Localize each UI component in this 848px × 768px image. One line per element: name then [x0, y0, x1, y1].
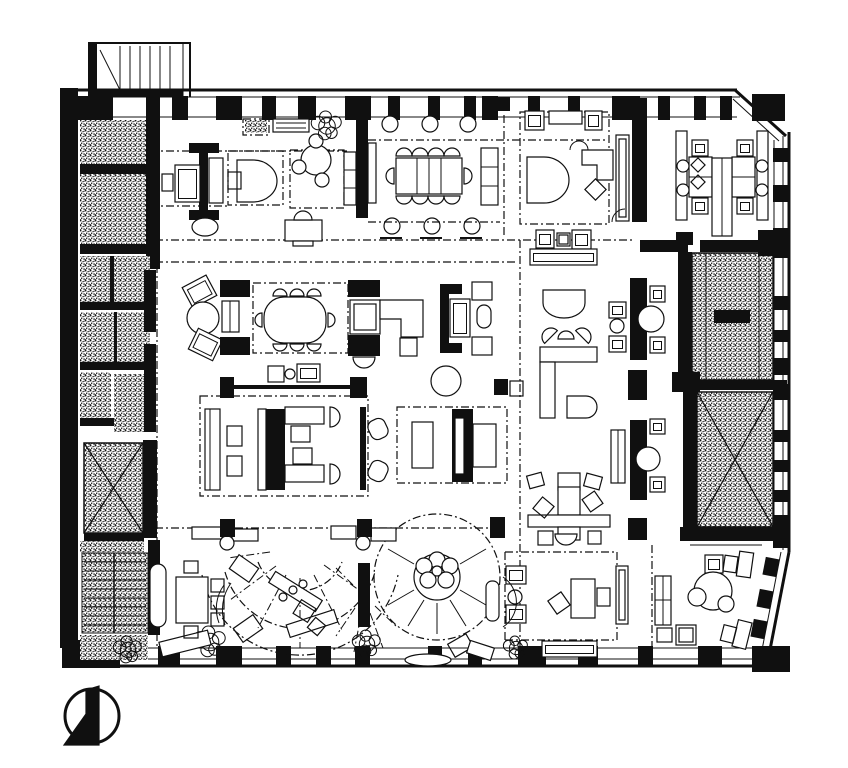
wall-segment: [97, 90, 183, 97]
furniture-rect: [293, 241, 313, 246]
line-item: [460, 549, 486, 564]
wall-segment: [266, 409, 285, 490]
wall-segment: [638, 646, 653, 666]
armchair: [650, 477, 665, 492]
circle-item: [187, 302, 219, 334]
furniture-outline: [597, 588, 610, 606]
furniture-outline: [548, 592, 570, 614]
wall-segment: [482, 96, 498, 120]
armchair: [536, 230, 554, 248]
wall-segment: [348, 335, 380, 356]
armchair: [737, 198, 753, 214]
chair-semi: [444, 148, 460, 156]
wall-segment: [144, 270, 156, 332]
stair-tower-wall: [88, 42, 97, 98]
armchair-outer: [188, 328, 222, 361]
furniture-rect: [232, 529, 258, 541]
furniture-outline: [227, 426, 242, 446]
furniture-outline: [510, 381, 523, 396]
furniture-rect: [368, 143, 376, 203]
line-item: [408, 600, 424, 626]
chair-semi: [255, 313, 262, 327]
wall-segment: [80, 302, 152, 310]
line-item: [460, 590, 486, 605]
armchair-outer: [650, 337, 665, 353]
furniture-rect: [477, 305, 491, 328]
wall-segment: [220, 377, 234, 398]
line-item: [388, 549, 414, 564]
circle-item: [718, 596, 734, 612]
armchair-outer: [650, 286, 665, 302]
chair-semi: [307, 344, 321, 351]
furniture-rect: [736, 551, 753, 578]
l-desk: [582, 150, 613, 180]
furniture-rect: [486, 581, 499, 621]
furniture-outline: [582, 491, 603, 512]
circle-item: [460, 116, 476, 132]
furniture-outline: [268, 366, 284, 382]
path-item: [570, 141, 588, 150]
wall-segment: [110, 256, 114, 302]
circle-item: [422, 116, 438, 132]
dashed-line: [370, 613, 383, 648]
path-item: [567, 396, 597, 418]
wall-segment: [80, 362, 152, 370]
line-item: [450, 600, 466, 626]
dashed-line: [334, 566, 353, 585]
stipple-area: [245, 120, 267, 133]
wall-segment: [758, 230, 787, 256]
furniture-rect: [258, 409, 266, 490]
furniture-outline: [227, 456, 242, 476]
armchair: [585, 111, 602, 130]
circle-item: [610, 319, 624, 333]
chair-semi: [330, 407, 340, 427]
armchair: [650, 337, 665, 353]
freight-shaft: [697, 392, 773, 527]
wall-segment: [360, 407, 366, 490]
furniture-rect: [412, 422, 433, 468]
wall-segment: [490, 517, 505, 538]
circle-item: [285, 369, 295, 379]
furniture-outline: [527, 472, 545, 488]
chair-semi: [555, 534, 577, 545]
corner-table: [380, 300, 423, 337]
wall-segment: [80, 244, 158, 254]
ellipse-item: [405, 654, 451, 666]
chair-semi: [273, 344, 287, 351]
furniture-rect: [540, 362, 555, 418]
armchair-outer: [525, 111, 544, 130]
chair-semi: [353, 357, 375, 368]
wall-segment: [276, 646, 291, 666]
armchair: [650, 286, 665, 302]
dashed-line: [336, 608, 355, 636]
wall-segment: [146, 97, 160, 269]
chair-semi: [428, 148, 444, 156]
furniture-rect: [285, 465, 324, 482]
furniture-rect: [331, 526, 356, 539]
chair-semi: [328, 313, 335, 327]
circle-item: [220, 536, 234, 550]
furniture-outline: [723, 555, 738, 573]
armchair: [692, 198, 708, 214]
wall-segment: [440, 284, 449, 353]
service-core-stipple: [80, 120, 146, 244]
office-desk: [237, 160, 277, 202]
chair-semi: [538, 324, 557, 343]
furniture-outline: [657, 628, 672, 642]
workstation-desk: [676, 131, 687, 220]
circle-item: [677, 160, 689, 172]
wall-segment: [773, 430, 789, 442]
circle-item: [677, 184, 689, 196]
wall-segment: [497, 97, 510, 111]
furniture-outline: [366, 416, 391, 442]
dining-settee: [150, 564, 166, 627]
circle-item: [756, 160, 768, 172]
furniture-rect: [619, 139, 626, 217]
furniture-outline: [472, 282, 492, 300]
wall-segment: [80, 164, 146, 174]
circle-item: [636, 447, 660, 471]
circle-item: [756, 184, 768, 196]
furniture-rect: [540, 347, 597, 362]
chair-semi: [396, 196, 412, 204]
wall-segment: [680, 527, 788, 541]
armchair-outer: [650, 419, 665, 434]
furniture-rect: [549, 111, 582, 124]
armchair-outer: [705, 555, 723, 573]
furniture-rect: [473, 424, 496, 467]
wall-segment: [216, 96, 242, 120]
wall-segment: [220, 280, 250, 297]
armchair-outer: [530, 249, 597, 265]
sofa: [530, 249, 597, 265]
furniture-rect: [619, 570, 625, 620]
wall-segment: [773, 515, 789, 527]
furniture-outline: [233, 615, 262, 643]
armchair-outer: [609, 336, 626, 352]
furniture-rect: [205, 409, 220, 490]
dining-table: [176, 577, 208, 623]
armchair-outer: [737, 140, 753, 156]
armchair: [506, 566, 526, 584]
screen-bar: [358, 563, 370, 627]
circle-item: [292, 160, 306, 174]
armchair: [525, 111, 544, 130]
wall-segment: [220, 519, 235, 537]
armchair: [572, 230, 591, 249]
plant-leaf: [319, 118, 336, 135]
furniture-rect: [159, 630, 211, 657]
wall-segment: [628, 518, 647, 540]
chair-semi: [330, 464, 340, 484]
wall-segment: [698, 646, 722, 666]
office-wall: [632, 98, 647, 222]
wall-segment: [756, 589, 773, 609]
chair-semi: [386, 168, 394, 184]
wall-segment: [720, 96, 732, 120]
oval-dining-table: [264, 297, 326, 343]
wall-segment: [172, 96, 188, 120]
wall-segment: [700, 240, 758, 252]
piano-desk: [527, 157, 569, 203]
circle-item: [638, 306, 664, 332]
furniture-outline: [588, 531, 601, 544]
wall-segment: [678, 252, 692, 386]
wall-segment: [357, 519, 372, 537]
wall-segment: [676, 232, 693, 245]
furniture-outline: [366, 458, 391, 484]
furniture-rect: [371, 528, 396, 541]
furniture-rect: [192, 527, 222, 539]
circle-item: [356, 536, 370, 550]
armchair-outer: [737, 198, 753, 214]
exec-desk: [543, 290, 585, 318]
stair-stipple: [82, 553, 148, 633]
wall-segment: [773, 185, 789, 202]
wall-segment: [773, 460, 789, 472]
circle-item: [464, 218, 480, 234]
chair-semi: [290, 344, 304, 351]
chair-semi: [412, 148, 428, 156]
furniture-rect: [285, 220, 322, 241]
chair-semi: [428, 196, 444, 204]
chair-semi: [444, 196, 460, 204]
circle-item: [432, 566, 442, 576]
circle-item: [299, 580, 307, 588]
document-page: [0, 0, 848, 768]
wall-segment: [773, 296, 789, 310]
dashed-line: [228, 552, 270, 558]
furniture-rect: [162, 174, 173, 191]
ellipse-item: [192, 218, 218, 236]
wall-segment: [714, 310, 750, 323]
armchair-outer: [692, 140, 708, 156]
circle-item: [382, 116, 398, 132]
furniture-rect: [285, 407, 324, 424]
chair-semi: [576, 324, 595, 343]
armchair: [609, 336, 626, 352]
furniture-outline: [293, 448, 312, 464]
wall-segment: [628, 370, 647, 400]
armchair-outer: [609, 302, 626, 318]
armchair: [188, 328, 222, 361]
wall-segment: [316, 646, 331, 666]
pier-i-top: [189, 143, 219, 153]
armchair: [705, 555, 723, 573]
furniture-outline: [585, 179, 606, 200]
wall-segment: [683, 390, 697, 530]
wall-segment: [262, 96, 276, 120]
armchair: [692, 140, 708, 156]
wall-segment: [658, 96, 670, 120]
furniture-outline: [584, 473, 603, 490]
circle-item: [431, 366, 461, 396]
lounge-chair: [175, 165, 200, 202]
wall-segment: [773, 148, 789, 162]
furniture-rect: [209, 158, 223, 203]
furniture-outline: [472, 337, 492, 355]
chair-semi: [464, 168, 472, 184]
furniture-outline: [538, 531, 553, 545]
furniture-outline: [400, 338, 417, 356]
chair-semi: [307, 289, 321, 296]
armchair-outer: [585, 111, 602, 130]
wall-segment: [80, 418, 114, 426]
credenza: [481, 148, 498, 205]
wall-segment: [694, 96, 706, 120]
wall-segment: [216, 646, 242, 666]
left-wall: [60, 88, 78, 648]
wall-segment: [350, 377, 367, 398]
stipple-area: [80, 541, 144, 553]
wall-segment: [352, 97, 364, 111]
armchair: [650, 419, 665, 434]
wall-segment: [143, 440, 157, 538]
furniture-rect: [757, 131, 768, 220]
elevator-shaft: [84, 443, 143, 533]
wall-segment: [144, 344, 156, 432]
wall-segment: [298, 96, 316, 120]
furniture-outline: [229, 555, 258, 583]
wall-segment: [773, 330, 789, 342]
furniture-rect: [273, 119, 309, 132]
furniture-rect: [344, 152, 356, 205]
circle-item: [688, 588, 706, 606]
furniture-outline: [291, 426, 310, 442]
floor-plan-drawing: [0, 0, 848, 768]
stair-diagonal: [100, 50, 120, 90]
corner-column-tr: [752, 94, 785, 121]
stipple-area: [80, 312, 114, 362]
armchair: [450, 299, 470, 337]
circle-item: [384, 218, 400, 234]
armchair: [737, 140, 753, 156]
armchair-outer: [542, 641, 597, 657]
wall-segment: [678, 380, 787, 390]
chair-semi: [294, 211, 312, 220]
furniture-rect: [455, 418, 464, 474]
armchair: [297, 364, 320, 382]
stipple-area: [114, 374, 144, 432]
circle-item: [309, 134, 323, 148]
wall-segment: [84, 533, 144, 541]
circle-item: [424, 218, 440, 234]
chair-semi: [273, 289, 287, 296]
wall-segment: [348, 280, 380, 297]
circle-item: [315, 173, 329, 187]
furniture-rect: [558, 487, 580, 515]
wall-segment: [494, 379, 508, 395]
furniture-rect: [571, 579, 595, 618]
armchair-outer: [572, 230, 591, 249]
stipple-area: [80, 256, 111, 302]
line-item: [388, 590, 414, 605]
armchair-outer: [692, 198, 708, 214]
armchair: [542, 641, 597, 657]
furniture-outline: [184, 561, 198, 573]
armchair-outer: [650, 477, 665, 492]
stipple-area: [80, 372, 111, 418]
chair-semi: [290, 289, 304, 296]
circle-item: [289, 586, 297, 594]
chair-semi: [396, 148, 412, 156]
wall-segment: [220, 337, 250, 355]
circle-item: [279, 593, 287, 601]
wall-segment: [773, 490, 789, 502]
wall-segment: [773, 358, 789, 375]
chair-semi: [558, 331, 574, 339]
armchair-outer: [536, 230, 554, 248]
wall-segment: [114, 312, 117, 366]
armchair: [609, 302, 626, 318]
furniture-outline: [211, 579, 224, 592]
wall-segment: [440, 343, 462, 353]
conference-wall: [356, 120, 368, 218]
cross-desk: [528, 515, 610, 527]
plan-layer: [60, 42, 790, 745]
wall-segment: [75, 96, 113, 120]
chair-semi: [412, 196, 428, 204]
